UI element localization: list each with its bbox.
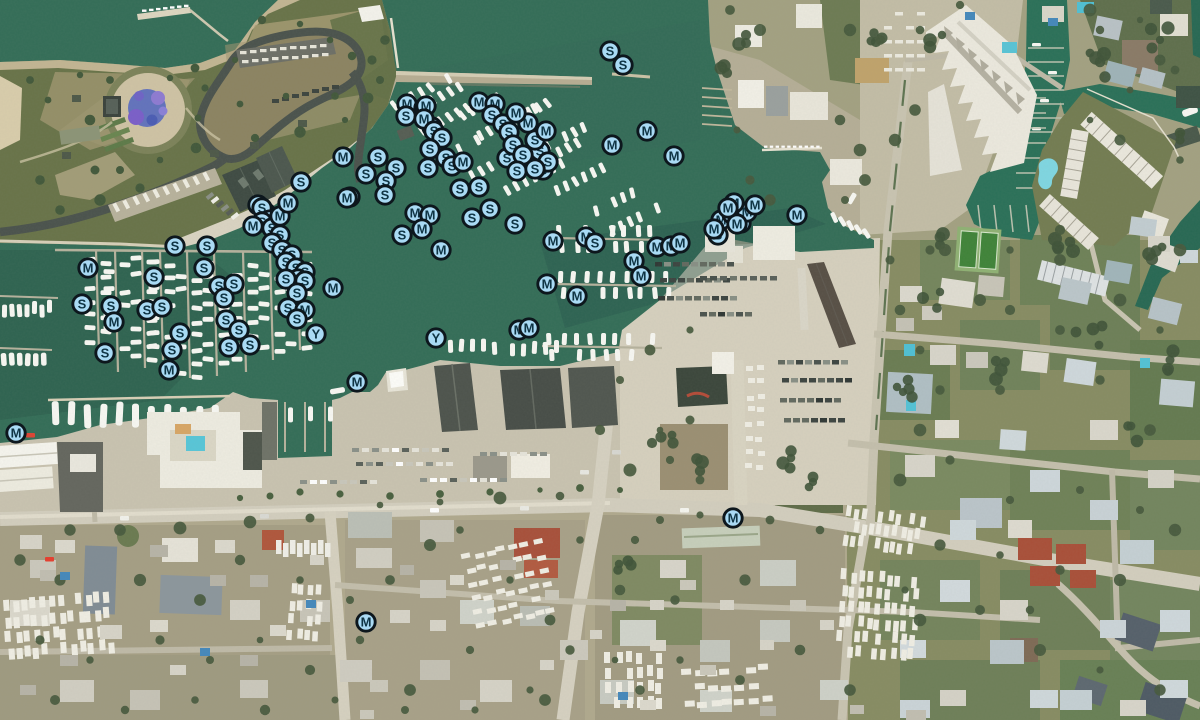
svg-text:S: S [235,323,244,338]
svg-text:M: M [642,124,653,139]
svg-text:S: S [225,340,234,355]
svg-text:M: M [352,375,363,390]
svg-text:S: S [222,313,231,328]
svg-text:M: M [283,196,294,211]
svg-text:S: S [293,286,302,301]
svg-text:M: M [248,219,259,234]
svg-text:M: M [524,321,535,336]
svg-text:S: S [246,338,255,353]
svg-text:M: M [669,149,680,164]
svg-text:S: S [511,217,520,232]
svg-text:M: M [361,615,372,630]
svg-text:M: M [709,222,720,237]
svg-text:M: M [436,243,447,258]
svg-text:S: S [200,261,209,276]
svg-text:Y: Y [432,331,441,346]
svg-text:S: S [143,303,152,318]
svg-text:S: S [381,188,390,203]
svg-text:S: S [402,109,411,124]
svg-text:M: M [83,261,94,276]
svg-text:M: M [607,138,618,153]
svg-text:S: S [297,175,306,190]
svg-text:S: S [282,272,291,287]
svg-text:M: M [548,234,559,249]
svg-text:S: S [78,297,87,312]
svg-text:M: M [474,95,485,110]
svg-text:M: M [675,236,686,251]
svg-text:S: S [203,239,212,254]
svg-text:S: S [456,182,465,197]
svg-text:S: S [230,277,239,292]
svg-text:M: M [636,269,647,284]
svg-text:S: S [486,202,495,217]
svg-text:S: S [424,161,433,176]
svg-text:M: M [750,198,761,213]
svg-text:S: S [591,236,600,251]
svg-text:M: M [328,281,339,296]
svg-text:M: M [542,277,553,292]
svg-text:S: S [475,180,484,195]
svg-text:M: M [728,511,739,526]
svg-text:S: S [619,58,628,73]
svg-text:S: S [519,148,528,163]
svg-text:S: S [107,299,116,314]
svg-text:S: S [176,326,185,341]
svg-text:S: S [101,346,110,361]
svg-text:M: M [338,150,349,165]
svg-text:M: M [164,363,175,378]
svg-text:M: M [572,289,583,304]
svg-text:M: M [11,426,22,441]
svg-text:M: M [458,155,469,170]
svg-text:S: S [168,343,177,358]
svg-text:M: M [732,217,743,232]
svg-text:M: M [410,206,421,221]
svg-text:S: S [606,44,615,59]
svg-text:M: M [511,106,522,121]
svg-text:M: M [342,191,353,206]
svg-text:S: S [468,211,477,226]
svg-text:S: S [171,239,180,254]
svg-text:M: M [541,124,552,139]
svg-text:S: S [531,162,540,177]
svg-text:S: S [398,228,407,243]
svg-text:Y: Y [312,327,321,342]
svg-text:S: S [374,150,383,165]
svg-text:S: S [426,142,435,157]
svg-text:S: S [220,291,229,306]
svg-text:S: S [293,312,302,327]
svg-text:M: M [723,201,734,216]
svg-text:S: S [513,164,522,179]
svg-text:M: M [792,208,803,223]
svg-text:S: S [362,167,371,182]
svg-text:M: M [417,222,428,237]
svg-text:M: M [109,315,120,330]
svg-text:S: S [150,270,159,285]
svg-text:S: S [158,300,167,315]
